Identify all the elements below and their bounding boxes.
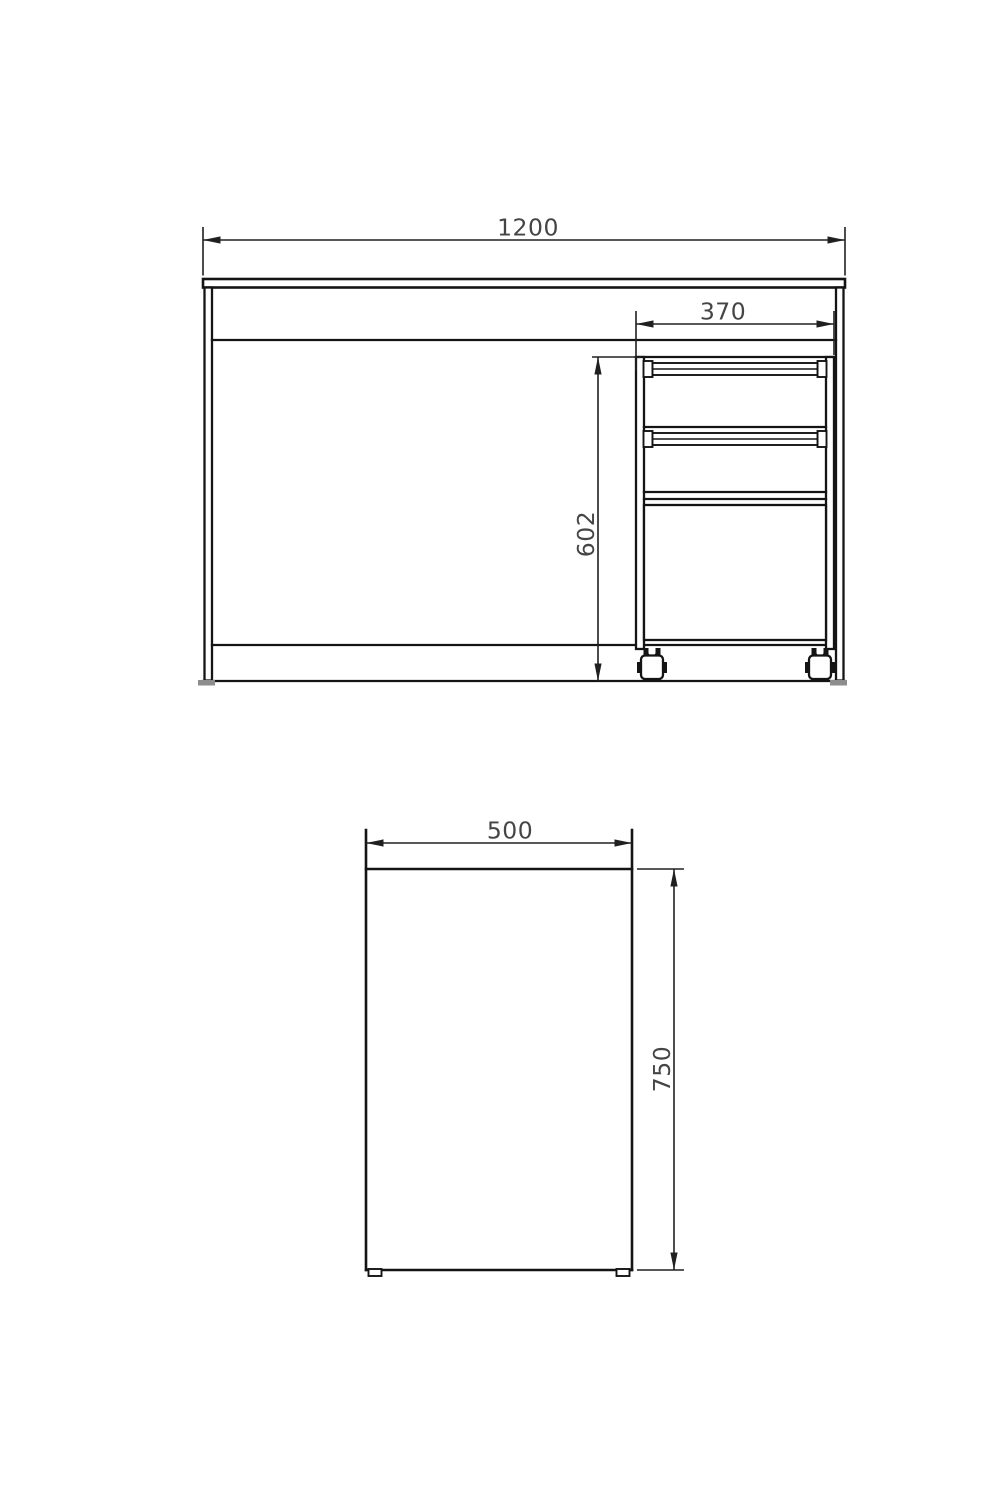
side-outline	[366, 830, 632, 1276]
caster-axle-tab	[637, 662, 642, 673]
dimension-label-height: 750	[648, 1046, 676, 1092]
dimension-label-overall-width: 1200	[497, 214, 559, 242]
dimension-label-pedestal-height: 602	[572, 511, 600, 557]
caster-axle-tab	[831, 662, 836, 673]
drawer-2-handle-end-left	[644, 431, 653, 447]
caster-axle-tab	[663, 662, 668, 673]
dimension-label-depth: 500	[487, 817, 533, 845]
desk-right-panel	[836, 288, 844, 681]
drawer-2-handle-end-right	[818, 431, 827, 447]
dimension-overall-width: 1200	[203, 214, 845, 276]
caster-right	[805, 648, 835, 679]
drawer-1	[644, 361, 827, 377]
pedestal-left-stile	[636, 357, 644, 649]
desk-foot-left	[198, 680, 215, 686]
caster-wheel	[641, 656, 663, 680]
desk-front-elevation: 1200 370 602	[198, 214, 847, 686]
dimension-pedestal-width: 370	[636, 298, 834, 372]
mobile-pedestal	[636, 357, 835, 679]
desk-side-elevation: 500 750	[366, 817, 684, 1277]
side-foot-left	[369, 1269, 382, 1276]
dimension-height: 750	[637, 869, 684, 1270]
file-drawer-front-panel	[644, 505, 826, 640]
drawer-2	[644, 431, 827, 447]
technical-drawing-canvas: 1200 370 602 500	[0, 0, 1000, 1500]
dimension-depth: 500	[366, 817, 632, 845]
dimension-label-pedestal-width: 370	[700, 298, 746, 326]
desk-foot-right	[830, 680, 847, 686]
dimension-pedestal-height: 602	[572, 357, 641, 681]
pedestal-right-stile	[826, 357, 834, 649]
drawer-1-handle-end-left	[644, 361, 653, 377]
caster-axle-tab	[805, 662, 810, 673]
drawer-1-handle-end-right	[818, 361, 827, 377]
side-foot-right	[617, 1269, 630, 1276]
caster-left	[637, 648, 667, 679]
desk-top-slab	[203, 279, 845, 288]
desk-left-panel	[205, 288, 213, 681]
caster-wheel	[809, 656, 831, 680]
